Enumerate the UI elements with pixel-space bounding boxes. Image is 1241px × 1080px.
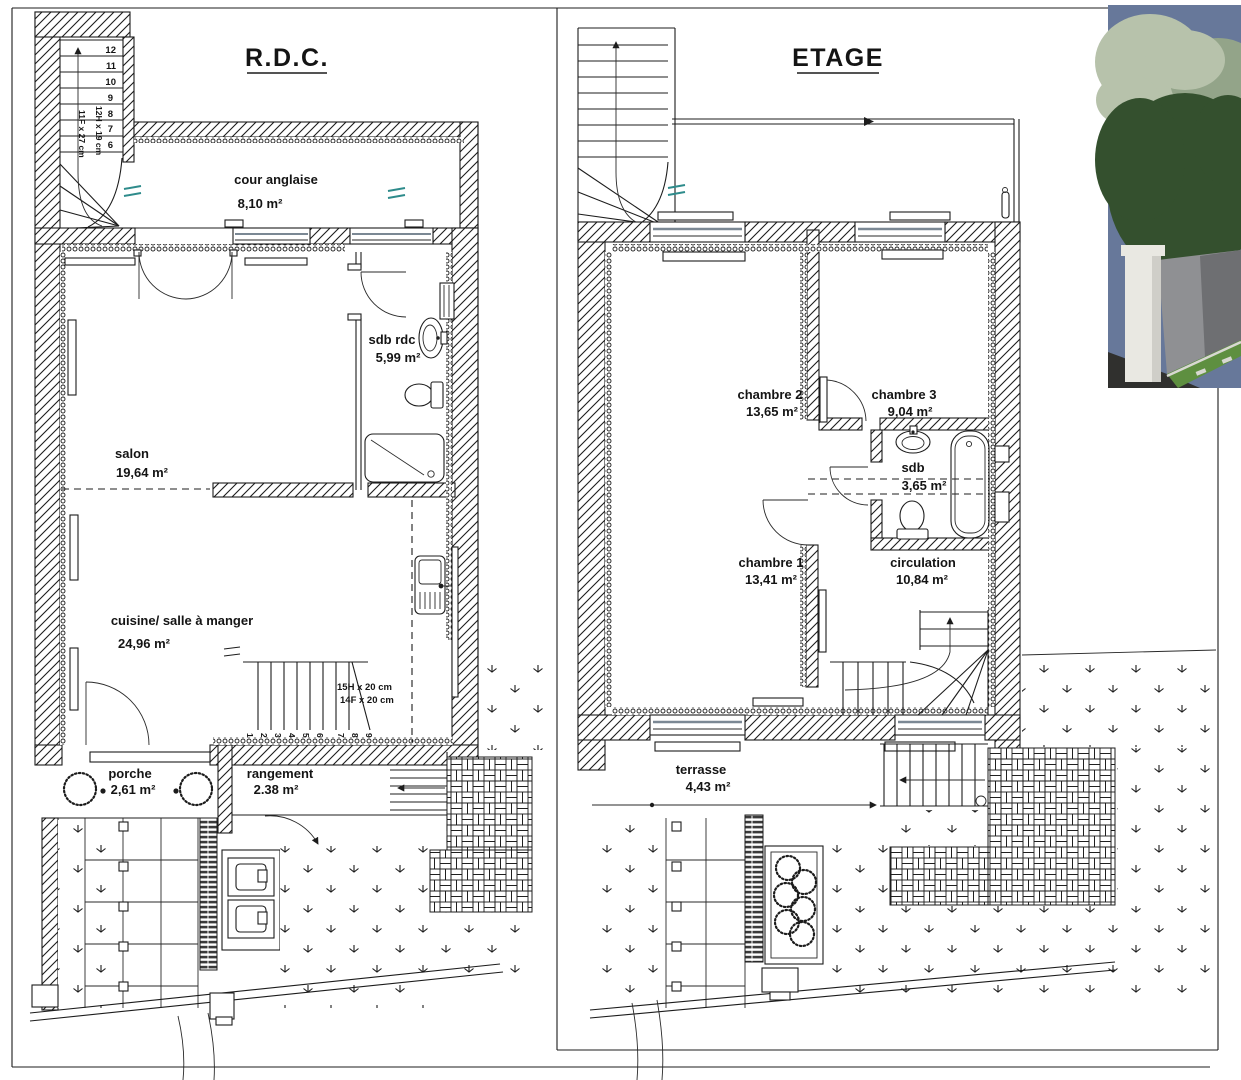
etage-walls [578, 222, 1020, 770]
stair-step-number: 8 [108, 109, 113, 120]
toilet [405, 382, 443, 408]
door-sdb-rdc [361, 272, 406, 317]
room-label-circulation: circulation [890, 555, 956, 570]
sdb-etage: sdb 3,65 m² [808, 426, 990, 539]
sdb-rdc: sdb rdc 5,99 m² [348, 252, 447, 490]
paving-bricks [430, 850, 532, 912]
rail-panel [819, 590, 826, 652]
room-label-chambre2: chambre 2 [737, 387, 802, 402]
stair-step-number: 6 [108, 140, 113, 151]
etage-staircase [578, 28, 685, 230]
fence-posts [672, 822, 681, 991]
stair-step-number: 11 [106, 61, 117, 72]
terrasse-edge [592, 803, 876, 807]
salon-doors [134, 250, 237, 299]
room-label-chambre1: chambre 1 [738, 555, 803, 570]
etage-title: ETAGE [792, 44, 884, 72]
svg-text:1: 1 [245, 733, 255, 738]
photo-inset [1095, 5, 1241, 388]
room-label-cuisine: cuisine/ salle à manger [111, 613, 253, 628]
terrace-grid [666, 818, 745, 1008]
room-area-sdb: 3,65 m² [902, 478, 947, 493]
room-area-terrasse: 4,43 m² [686, 779, 731, 794]
paving-bricks [988, 748, 1115, 905]
stair-step-number: 7 [108, 124, 113, 135]
hedge-strip [200, 818, 217, 970]
gate-swing [265, 816, 318, 844]
downspout [1002, 192, 1009, 218]
room-label-sdb-rdc: sdb rdc [369, 332, 416, 347]
stair-step-number: 9 [108, 93, 113, 104]
room-area-porche: 2,61 m² [111, 782, 156, 797]
hedge-strip [745, 815, 763, 962]
svg-text:7: 7 [336, 733, 346, 738]
paving-bricks [890, 847, 990, 905]
toilet [897, 501, 928, 539]
floor-plan-sheet: R.D.C. [0, 0, 1241, 1080]
svg-text:9: 9 [364, 733, 374, 738]
room-label-rangement: rangement [247, 766, 314, 781]
stair-dimension-note: 12H x 19 cm [94, 106, 104, 156]
room-area-rangement: 2.38 m² [254, 782, 299, 797]
room-label-porche: porche [108, 766, 151, 781]
stair-step-numbers: 1 2 3 4 5 6 7 8 9 [245, 733, 374, 738]
stair-step-number: 10 [105, 77, 116, 88]
room-label-sdb: sdb [901, 460, 924, 475]
stair-step-number: 12 [105, 45, 116, 56]
svg-text:8: 8 [350, 733, 360, 738]
bathtub [951, 431, 989, 538]
sink [419, 318, 447, 358]
plan-drawing: R.D.C. [0, 0, 1241, 1080]
room-area-salon: 19,64 m² [116, 465, 169, 480]
stair-dimension-note: 15H x 20 cm [337, 682, 392, 693]
rdc-main-staircase: 12 11 10 9 8 7 6 12H x 19 cm 11F x 27 cm [60, 40, 123, 228]
planter [765, 846, 823, 964]
utility-boxes [222, 850, 280, 950]
etage-exterior-stair [880, 744, 988, 806]
etage-garden [598, 650, 1216, 1008]
door-chambre3 [820, 377, 866, 422]
door-sdb [830, 467, 868, 505]
rdc-plan: R.D.C. [30, 12, 552, 1080]
balcony-rail [672, 117, 1019, 222]
photo-pillar [1121, 245, 1165, 382]
svg-text:6: 6 [315, 733, 325, 738]
svg-text:2: 2 [259, 733, 269, 738]
door-chambre1 [763, 500, 808, 545]
shower [365, 434, 444, 482]
svg-text:5: 5 [301, 733, 311, 738]
room-label-chambre3: chambre 3 [871, 387, 936, 402]
paving-bricks [447, 757, 532, 850]
room-area-circulation: 10,84 m² [896, 572, 949, 587]
circulation-staircase [830, 610, 988, 715]
stair-dimension-note: 14F x 20 cm [340, 695, 394, 706]
svg-text:3: 3 [273, 733, 283, 738]
stair-dimension-note: 11F x 27 cm [77, 110, 87, 158]
room-label-salon: salon [115, 446, 149, 461]
room-label-terrasse: terrasse [676, 762, 727, 777]
room-area-chambre2: 13,65 m² [746, 404, 799, 419]
room-area-sdb-rdc: 5,99 m² [376, 350, 421, 365]
room-area-chambre1: 13,41 m² [745, 572, 798, 587]
room-area-cuisine: 24,96 m² [118, 636, 171, 651]
room-area-cour-anglaise: 8,10 m² [238, 196, 283, 211]
room-label-cour-anglaise: cour anglaise [234, 172, 318, 187]
entrance-door [86, 682, 210, 762]
kitchen-staircase: 15H x 20 cm 14F x 20 cm 1 2 3 4 5 6 7 8 … [224, 647, 394, 738]
counter-strip [452, 547, 458, 697]
svg-text:4: 4 [287, 733, 297, 738]
room-area-chambre3: 9,04 m² [888, 404, 933, 419]
rdc-exterior-stair [390, 752, 447, 845]
rdc-title: R.D.C. [245, 44, 329, 72]
